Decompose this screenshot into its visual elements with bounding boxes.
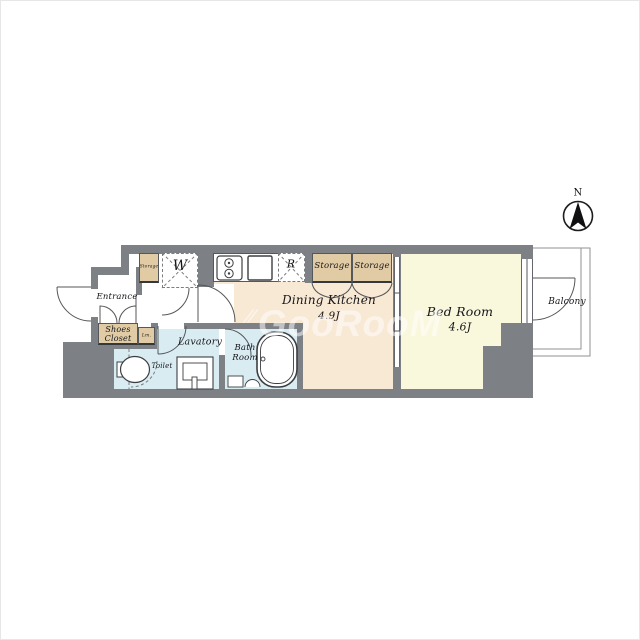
door-arc-entrance-double bbox=[100, 306, 136, 323]
label-compass-north: N bbox=[574, 187, 583, 199]
label-entrance: Entrance bbox=[96, 293, 137, 303]
label-lavatory: Lavatory bbox=[178, 338, 222, 349]
label-dining-kitchen-size: 4.9J bbox=[318, 310, 340, 322]
door-arc-hall bbox=[162, 288, 189, 315]
sliding-door-ticks bbox=[394, 293, 400, 331]
label-storage-2: Storage bbox=[354, 262, 389, 272]
bathtub-inner bbox=[261, 336, 294, 384]
toilet-bowl bbox=[121, 357, 150, 383]
label-washer: W bbox=[173, 258, 188, 274]
stove-burner-1-dot bbox=[228, 262, 230, 264]
kitchen-sink bbox=[248, 256, 272, 280]
bath-counter bbox=[228, 376, 243, 387]
label-toilet: Toilet bbox=[152, 362, 173, 370]
label-bed-room: Bed Room bbox=[427, 305, 493, 319]
floor-plan: Entrance Shoes Closet Lm. Storage W R St… bbox=[0, 0, 640, 640]
stove-burner-2-dot bbox=[228, 272, 230, 274]
door-arc-front-entrance bbox=[57, 287, 91, 321]
label-storage-hall: Storage bbox=[140, 266, 159, 271]
label-bed-room-size: 4.6J bbox=[449, 322, 472, 335]
label-fridge: R bbox=[287, 259, 295, 272]
washbasin-stub bbox=[192, 377, 197, 389]
label-dining-kitchen: Dining Kitchen bbox=[282, 294, 376, 308]
label-balcony: Balcony bbox=[548, 297, 586, 307]
bath-stool bbox=[245, 380, 260, 387]
label-bath-room: Bath Room bbox=[232, 344, 258, 364]
label-linen: Lm. bbox=[142, 333, 151, 338]
bathtub-faucet-icon bbox=[261, 357, 265, 361]
label-storage-1: Storage bbox=[314, 262, 349, 272]
label-shoes-closet: Shoes Closet bbox=[105, 325, 132, 343]
door-arc-corridor-dk bbox=[198, 285, 235, 322]
